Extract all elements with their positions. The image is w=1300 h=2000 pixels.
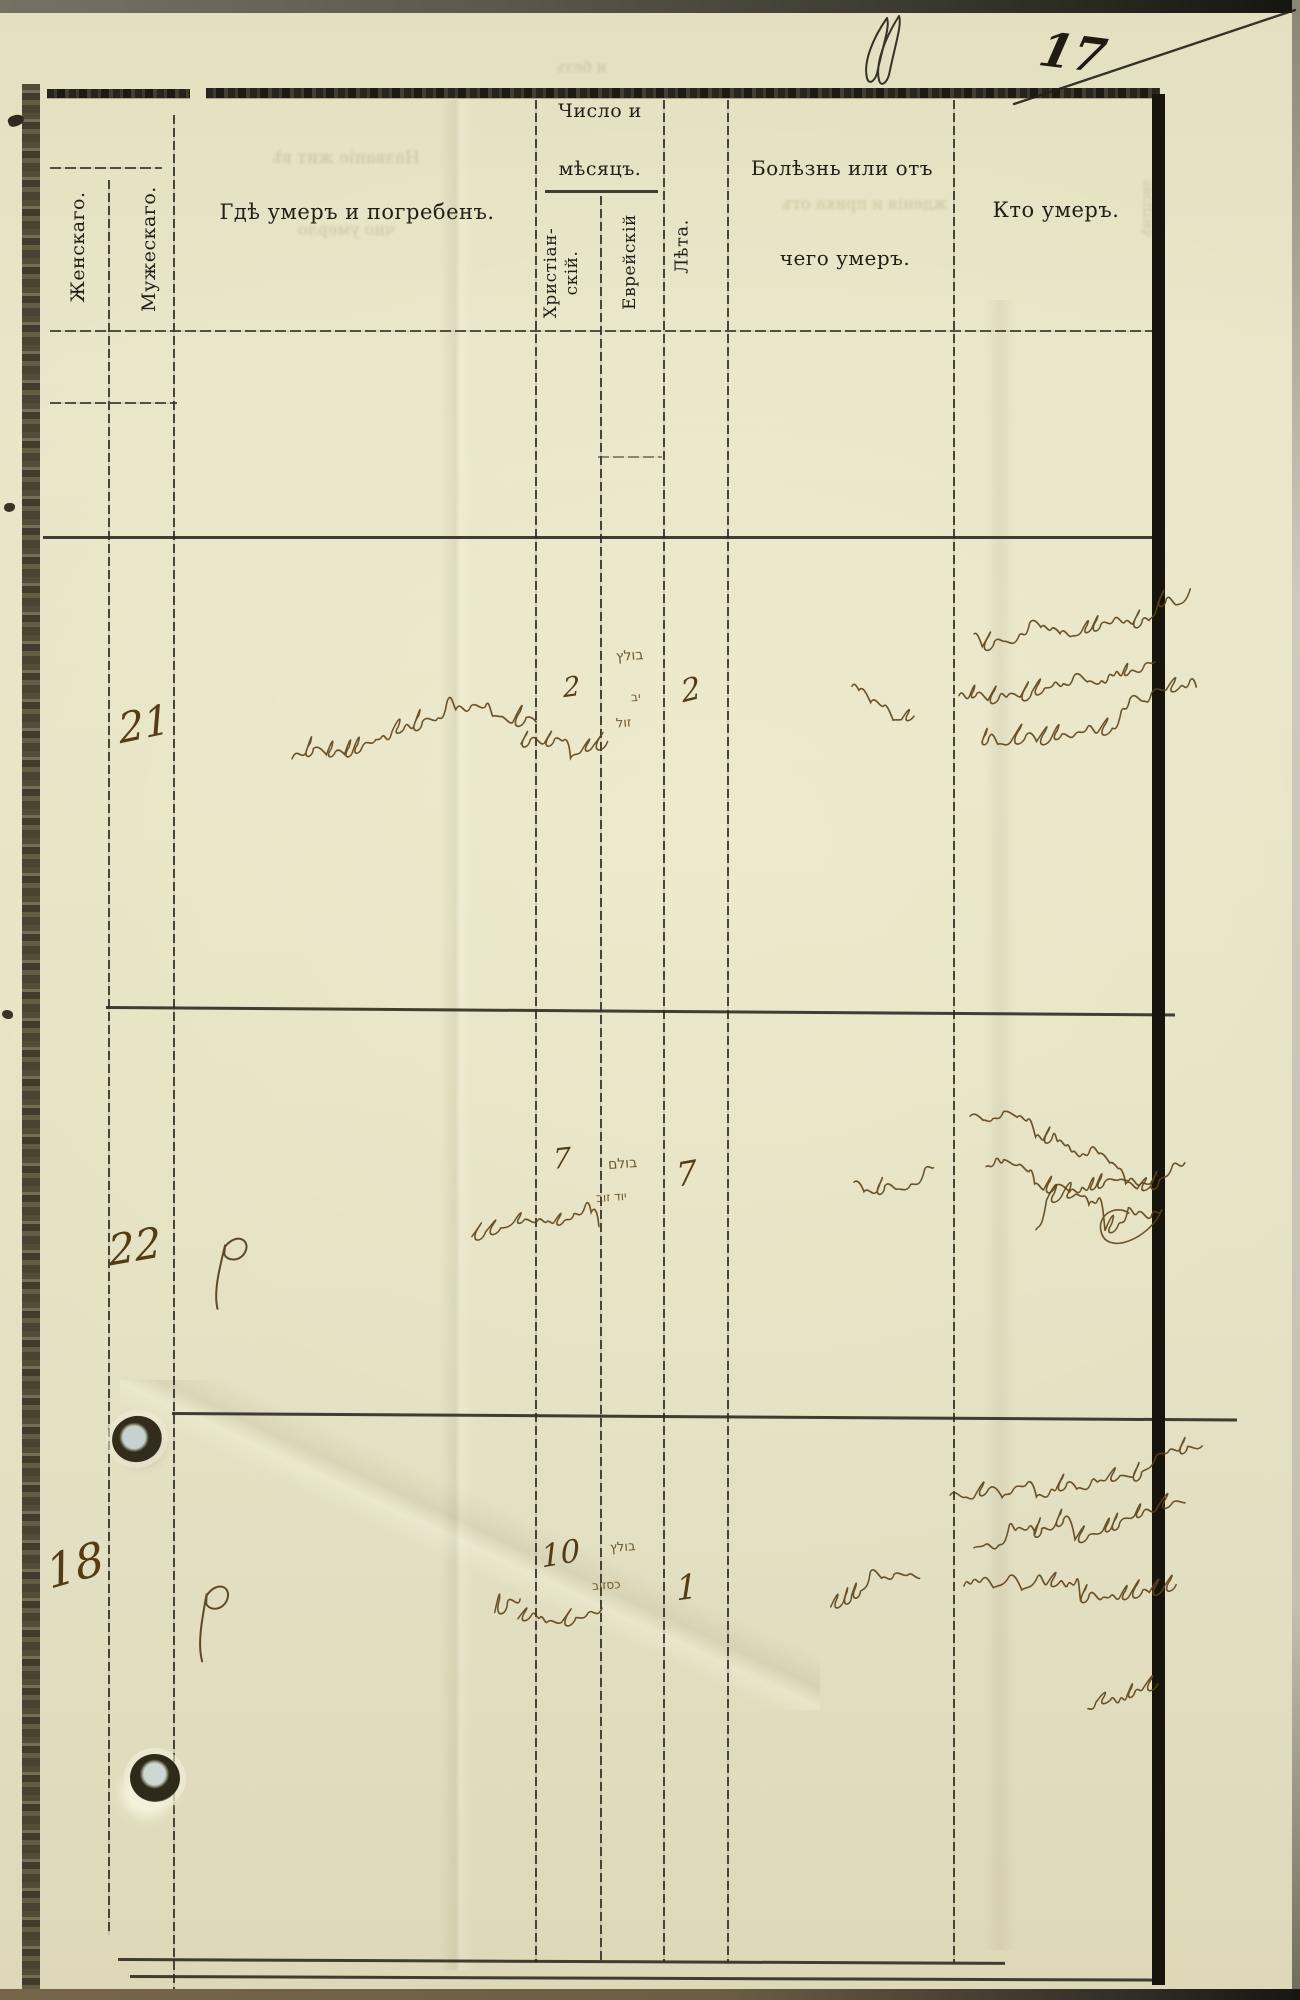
record1-month-script xyxy=(515,695,630,793)
record2-place-ditto xyxy=(208,1234,256,1318)
record1-hebrew-date-2: יב xyxy=(631,690,642,705)
record1-place-script xyxy=(286,700,556,808)
handwriting-layer: 17212בולץיבזול2227בולםיוד זוב71810בולץכס… xyxy=(0,0,1300,2000)
record2-month-script xyxy=(466,1186,617,1285)
record1-number: 21 xyxy=(116,695,172,754)
scanned-registry-page: звсцтнѣи безъжденія и прика отъчно умерл… xyxy=(0,0,1300,2000)
record3-hebrew-date-1: בולץ xyxy=(610,1539,636,1556)
record1-hebrew-date-3: זול xyxy=(615,715,631,731)
record2-who-signature xyxy=(1030,1177,1183,1279)
record2-christian-day: 7 xyxy=(553,1141,571,1176)
record3-who-line3 xyxy=(958,1533,1199,1635)
record3-age: 1 xyxy=(675,1566,698,1609)
record2-number: 22 xyxy=(107,1217,163,1275)
record2-hebrew-date-2: יוד זוב xyxy=(596,1189,628,1205)
pen-diagonal-line xyxy=(0,0,1300,144)
record2-cause-script xyxy=(846,1129,956,1232)
record3-cause-script xyxy=(817,1540,946,1655)
record2-hebrew-date-1: בולם xyxy=(607,1155,637,1173)
record3-christian-day: 10 xyxy=(540,1533,581,1576)
record1-hebrew-date-1: בולץ xyxy=(615,647,643,665)
record1-age: 2 xyxy=(679,670,703,711)
record3-hebrew-date-2: כסזוב xyxy=(592,1577,621,1593)
record3-place-ditto xyxy=(193,1583,237,1669)
record3-number: 18 xyxy=(42,1530,108,1600)
record1-cause-script xyxy=(843,633,940,736)
record1-who-line3 xyxy=(976,689,1214,791)
record2-age: 7 xyxy=(675,1152,698,1195)
record3-extra-word xyxy=(1081,1658,1173,1758)
